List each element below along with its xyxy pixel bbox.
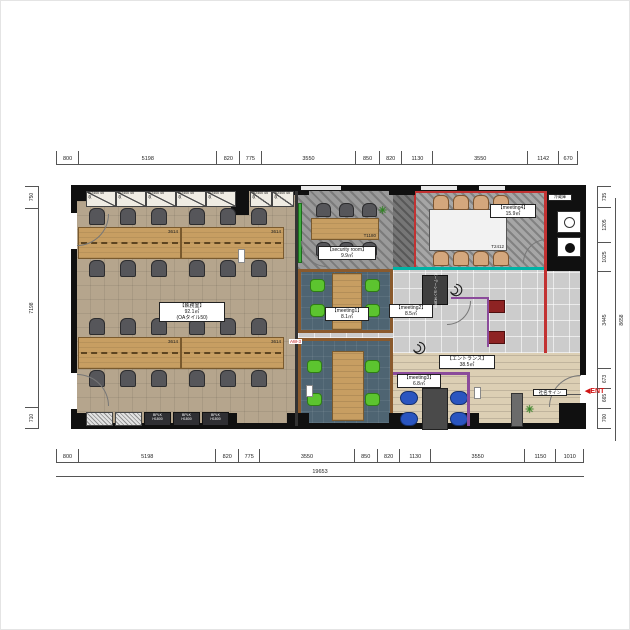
sign-leader-line: [567, 394, 581, 395]
top-wall-opening: [421, 186, 457, 190]
company-sign-label: 社名サイン: [533, 389, 567, 396]
wall-cabinet-sublabel: 収: [208, 196, 235, 200]
office-chair: [151, 370, 167, 387]
office-chair: [189, 370, 205, 387]
lounge-sofa: [488, 331, 505, 344]
wall-cabinet: W2400 45収: [176, 191, 206, 207]
meeting2-area: 8.5㎡: [391, 311, 431, 317]
office-desk: 3614: [181, 337, 284, 369]
meeting4-table-label: T2412: [491, 244, 504, 249]
fridge-label: 冷蔵庫: [548, 194, 572, 201]
column: [389, 185, 415, 195]
desk-size-label: 3614: [271, 229, 281, 234]
meeting-green-chair: [365, 279, 380, 292]
office-chair: [220, 260, 236, 277]
booth-blue-chair: [450, 391, 468, 405]
booth-blue-chair: [450, 412, 468, 426]
security-table: T1180: [311, 218, 379, 240]
booth-table: [422, 388, 448, 430]
meeting-green-chair: [310, 304, 325, 317]
wall-cabinet-sublabel: 収: [148, 196, 175, 200]
floor-cabinet: BPLKH1800: [144, 412, 171, 426]
room-label-meeting2: 【meeting2】 8.5㎡: [389, 304, 433, 318]
lounge-sofa: [488, 300, 505, 313]
partition-panel: パーテーション H1800: [422, 275, 448, 305]
floor-plan-canvas: 80051988207753550850820113035501142670 8…: [0, 0, 630, 630]
office-chair: [151, 260, 167, 277]
room-label-meeting4: 【meeting4】 15.9㎡: [490, 204, 536, 218]
sink-unit: [557, 211, 581, 233]
office-chair: [89, 260, 105, 277]
floor-cabinet-sublabel: H1800: [145, 417, 170, 421]
meeting4-area: 15.9㎡: [492, 211, 534, 217]
wall-cabinet: W2400 45収: [116, 191, 146, 207]
office-chair: [251, 208, 267, 225]
top-wall-opening: [479, 186, 505, 190]
security-table-label: T1180: [364, 233, 376, 238]
wall-cabinet-sublabel: 収: [274, 196, 293, 200]
office-chair: [120, 260, 136, 277]
office-chair: [120, 370, 136, 387]
office-chair: [251, 318, 267, 335]
whiteboard: [298, 203, 302, 263]
meeting4-chair: [433, 251, 449, 266]
desk-size-label: 3614: [271, 339, 281, 344]
office-note: (OAタイル50): [161, 315, 223, 321]
wall-cabinet-sublabel: 収: [88, 196, 115, 200]
floor-cabinet-sublabel: H1800: [174, 417, 199, 421]
security-area: 9.9㎡: [320, 253, 374, 259]
column-tag: [306, 385, 313, 397]
meeting-lower-table: [332, 351, 364, 421]
sketch-swirl-icon: [448, 282, 464, 298]
meeting3-area: 6.8㎡: [399, 381, 439, 387]
office-chair: [189, 208, 205, 225]
meeting4-chair: [453, 251, 469, 266]
stove-unit: [557, 237, 581, 257]
office-chair: [220, 370, 236, 387]
room-label-office: 【執務室】 92.1㎡ (OAタイル50): [159, 302, 225, 322]
floor-cabinet: BPLKH1800: [202, 412, 229, 426]
office-chair: [251, 260, 267, 277]
top-wall-opening: [301, 186, 341, 190]
teal-partition-line: [393, 267, 546, 270]
meeting4-chair: [473, 251, 489, 266]
entrance-area: 38.5㎡: [441, 362, 493, 368]
column: [71, 185, 87, 201]
booth-blue-chair: [400, 412, 418, 426]
meeting4-chair: [453, 195, 469, 210]
room-label-security: 【security room】 9.9㎡: [318, 246, 376, 260]
meeting-green-chair: [365, 393, 380, 406]
floor-cabinet-existing: [115, 412, 142, 426]
office-chair: [251, 370, 267, 387]
office-chair: [120, 208, 136, 225]
booth-wall-right: [467, 372, 470, 426]
meeting4-chair: [473, 195, 489, 210]
office-chair: [120, 318, 136, 335]
meeting-green-chair: [310, 279, 325, 292]
window-tag: AW-3: [289, 339, 302, 344]
room-label-meeting3: 【meeting3】 6.8㎡: [397, 374, 441, 388]
office-chair: [189, 260, 205, 277]
wall-cabinet: W2400 45収: [146, 191, 176, 207]
plant-icon: ✳: [378, 206, 387, 217]
corridor-purple-line-v: [487, 297, 489, 347]
room-label-entrance: 【エントランス】 38.5㎡: [439, 355, 495, 369]
desk-size-label: 3614: [168, 339, 178, 344]
meeting-green-chair: [307, 360, 322, 373]
floor-cabinet-existing: [86, 412, 113, 426]
column: [287, 413, 309, 429]
office-desk: 3614: [181, 227, 284, 259]
sketch-swirl-icon: [411, 340, 427, 356]
wall-cabinet: W2400 45収: [250, 191, 272, 207]
entrance-cabinet: [511, 393, 523, 427]
desk-size-label: 3614: [168, 229, 178, 234]
meeting1-area: 8.1㎡: [327, 314, 367, 320]
red-wall-line: [544, 191, 547, 353]
meeting1-table: [332, 273, 362, 330]
meeting4-chair: [493, 251, 509, 266]
wall-cabinet-sublabel: 収: [178, 196, 205, 200]
wall-cabinet-sublabel: 収: [118, 196, 145, 200]
meeting4-chair: [433, 195, 449, 210]
security-chair: [362, 203, 377, 217]
floor-plan: 3614 3614 3614 3614 T1180 T2412 パーテーション …: [1, 1, 630, 630]
office-chair: [151, 208, 167, 225]
office-chair: [89, 318, 105, 335]
security-chair: [339, 203, 354, 217]
floor-cabinet-sublabel: H1800: [203, 417, 228, 421]
meeting-green-chair: [365, 360, 380, 373]
wall-cabinet: W2400 45収: [86, 191, 116, 207]
wall-cabinet: W2400 45収: [206, 191, 236, 207]
entrance-marker: ◀ENT: [585, 387, 604, 395]
office-desk: 3614: [78, 337, 181, 369]
partition-label: パーテーション H1800: [433, 272, 438, 308]
column-tag: [238, 249, 245, 263]
wall-cabinet-sublabel: 収: [252, 196, 271, 200]
office-chair: [220, 208, 236, 225]
column-tag: [474, 387, 481, 399]
corridor-dark-strip: [393, 191, 414, 269]
security-chair: [316, 203, 331, 217]
plant-icon: ✳: [525, 405, 534, 416]
wall-cabinet: W2400 45収: [272, 191, 294, 207]
floor-cabinet: BPLKH1800: [173, 412, 200, 426]
booth-blue-chair: [400, 391, 418, 405]
column: [71, 413, 87, 429]
room-label-meeting1: 【meeting1】 8.1㎡: [325, 307, 369, 321]
